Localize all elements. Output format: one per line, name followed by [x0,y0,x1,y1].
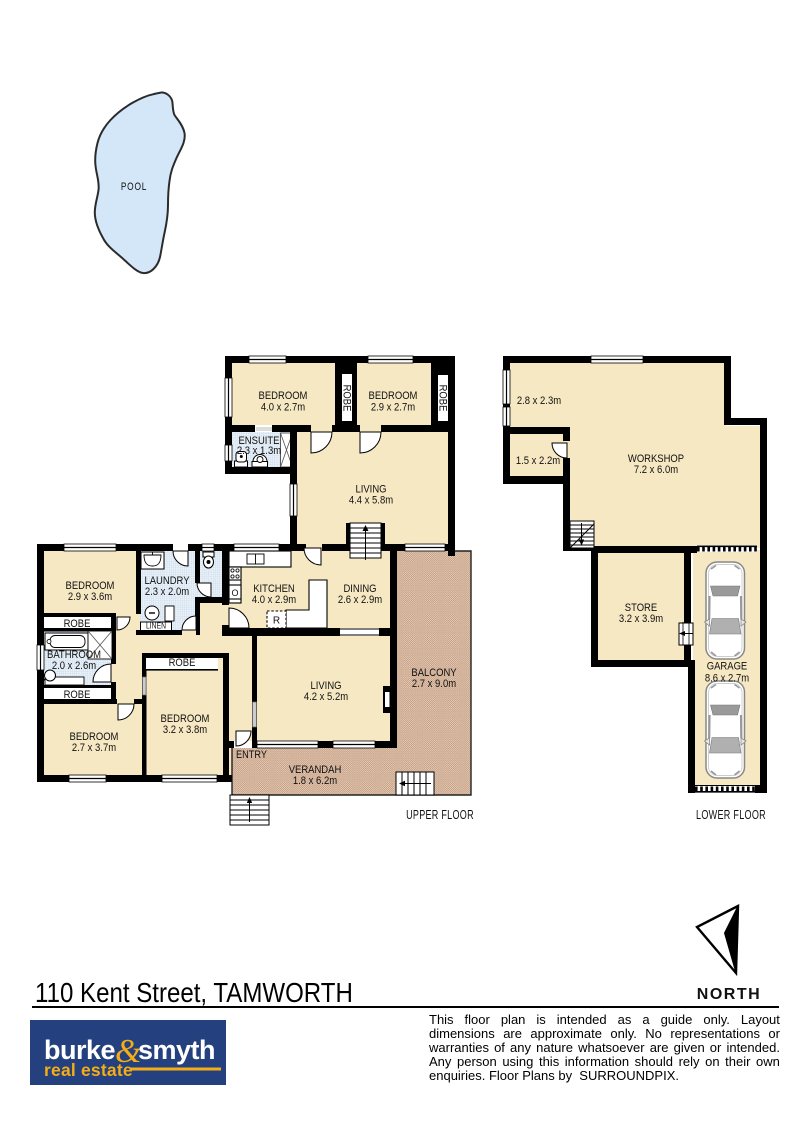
svg-text:4.0 x 2.7m: 4.0 x 2.7m [261,402,305,414]
svg-text:2.9 x 2.7m: 2.9 x 2.7m [371,402,415,414]
svg-text:2.3 x 1.3m: 2.3 x 1.3m [237,445,281,457]
svg-text:2.7 x 3.7m: 2.7 x 3.7m [72,742,116,754]
svg-text:ENTRY: ENTRY [236,749,268,761]
svg-text:2.9 x 3.6m: 2.9 x 3.6m [68,591,112,603]
svg-text:2.8 x 2.3m: 2.8 x 2.3m [517,395,561,407]
svg-text:smyth: smyth [138,1035,215,1065]
svg-text:4.4 x 5.8m: 4.4 x 5.8m [349,495,393,507]
svg-text:LOWER FLOOR: LOWER FLOOR [696,807,766,822]
svg-text:8.6 x 2.7m: 8.6 x 2.7m [705,673,749,685]
svg-text:ROBE: ROBE [169,657,196,669]
svg-text:BEDROOM: BEDROOM [259,390,308,402]
svg-text:2.6 x 2.9m: 2.6 x 2.9m [338,594,382,606]
svg-text:ROBE: ROBE [437,385,449,412]
svg-text:UPPER FLOOR: UPPER FLOOR [406,807,474,822]
svg-text:1.8 x 6.2m: 1.8 x 6.2m [293,775,337,787]
svg-text:2.7 x 9.0m: 2.7 x 9.0m [412,678,456,690]
svg-text:7.2 x 6.0m: 7.2 x 6.0m [634,464,678,476]
svg-text:real estate: real estate [44,1060,133,1080]
svg-text:4.0 x 2.9m: 4.0 x 2.9m [252,594,296,606]
svg-text:GARAGE: GARAGE [707,661,748,673]
svg-text:ROBE: ROBE [64,618,91,630]
svg-text:O: O [231,588,238,598]
svg-text:3.2 x 3.8m: 3.2 x 3.8m [163,724,207,736]
svg-text:LINEN: LINEN [146,622,166,631]
svg-text:BEDROOM: BEDROOM [369,390,418,402]
svg-text:ROBE: ROBE [341,385,353,412]
svg-text:POOL: POOL [121,181,147,193]
svg-text:2.0 x 2.6m: 2.0 x 2.6m [52,660,96,672]
svg-text:R: R [273,616,280,627]
svg-text:NORTH: NORTH [697,986,761,1003]
svg-text:4.2 x 5.2m: 4.2 x 5.2m [304,691,348,703]
svg-text:1.5 x 2.2m: 1.5 x 2.2m [516,455,560,467]
svg-text:2.3 x 2.0m: 2.3 x 2.0m [145,586,189,598]
svg-text:ROBE: ROBE [64,689,91,701]
svg-text:3.2 x 3.9m: 3.2 x 3.9m [619,613,663,625]
